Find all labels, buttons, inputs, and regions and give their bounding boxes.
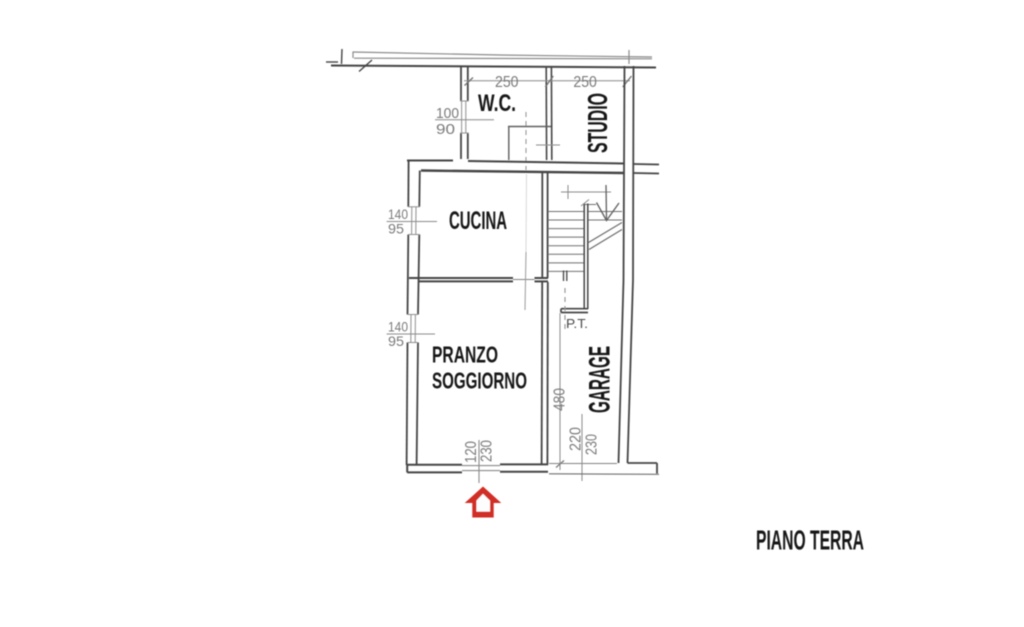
svg-text:95: 95 <box>388 334 404 349</box>
svg-text:PIANO TERRA: PIANO TERRA <box>756 525 864 556</box>
svg-text:250: 250 <box>573 74 597 91</box>
svg-text:140: 140 <box>388 207 408 222</box>
svg-text:PRANZO: PRANZO <box>432 342 498 368</box>
svg-text:230: 230 <box>584 434 601 455</box>
svg-text:95: 95 <box>388 222 404 237</box>
svg-text:P.T.: P.T. <box>566 316 588 331</box>
svg-text:120: 120 <box>463 441 480 463</box>
svg-text:W.C.: W.C. <box>478 90 516 117</box>
svg-text:STUDIO: STUDIO <box>582 93 613 153</box>
svg-text:SOGGIORNO: SOGGIORNO <box>432 368 527 394</box>
svg-text:220: 220 <box>568 427 585 451</box>
svg-text:480: 480 <box>552 388 569 411</box>
svg-text:GARAGE: GARAGE <box>584 346 617 413</box>
svg-text:CUCINA: CUCINA <box>449 207 507 235</box>
svg-text:230: 230 <box>479 440 496 462</box>
svg-text:140: 140 <box>388 320 408 335</box>
svg-text:250: 250 <box>495 74 519 91</box>
svg-text:90: 90 <box>436 121 455 138</box>
